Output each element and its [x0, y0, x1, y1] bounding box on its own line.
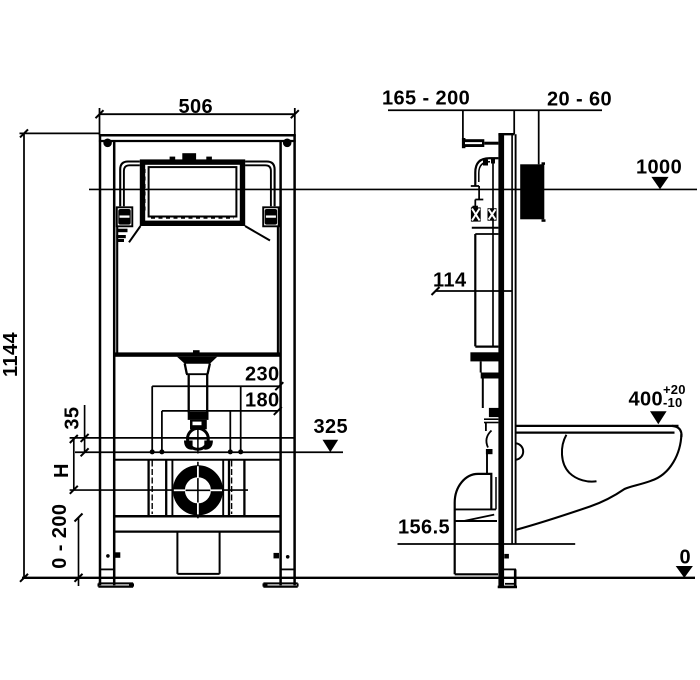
svg-text:1000: 1000	[636, 157, 682, 179]
svg-text:325: 325	[314, 416, 349, 438]
svg-text:114: 114	[433, 270, 467, 292]
svg-text:506: 506	[179, 96, 214, 118]
svg-text:180: 180	[245, 390, 280, 412]
svg-text:H: H	[51, 463, 73, 478]
svg-text:35: 35	[62, 407, 84, 430]
svg-text:0 - 200: 0 - 200	[49, 504, 71, 569]
svg-text:156.5: 156.5	[398, 517, 450, 539]
svg-text:20 - 60: 20 - 60	[547, 89, 612, 111]
svg-text:230: 230	[245, 364, 280, 386]
svg-text:165 - 200: 165 - 200	[382, 88, 470, 110]
svg-text:1144: 1144	[0, 332, 22, 377]
svg-text:400: 400	[629, 389, 664, 411]
svg-text:0: 0	[680, 547, 692, 569]
svg-text:-10: -10	[663, 395, 682, 410]
